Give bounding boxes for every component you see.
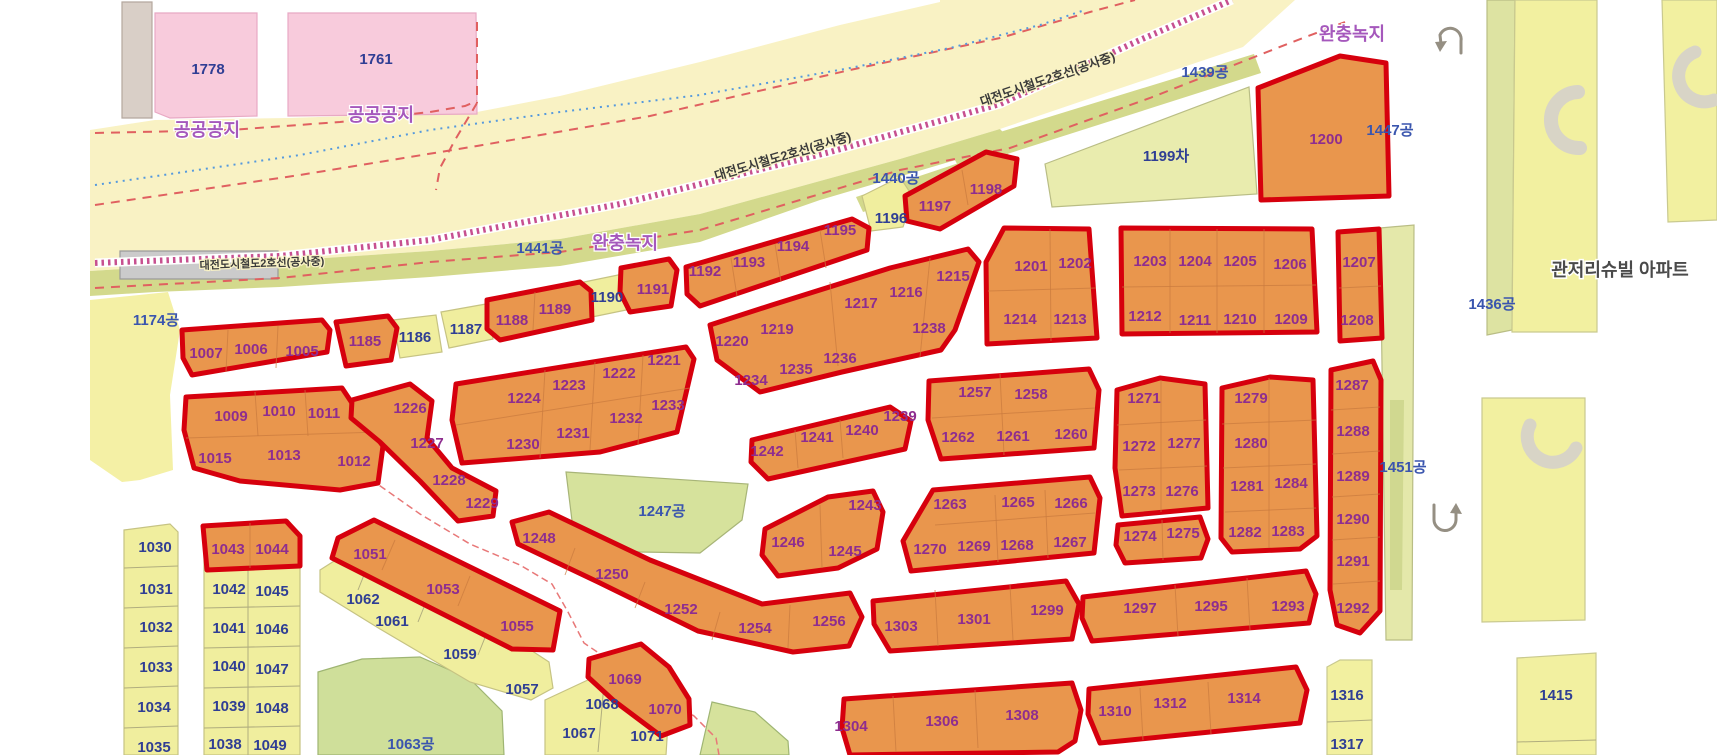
parcel-label-1005: 1005 <box>285 343 318 360</box>
uturn-arrow-right-icon-head <box>1450 503 1462 514</box>
parcel-label-1233: 1233 <box>651 397 684 414</box>
parcel-label-1043: 1043 <box>211 541 244 558</box>
parcel-label-1288: 1288 <box>1336 423 1369 440</box>
parcel-label-1227: 1227 <box>410 435 443 452</box>
parcel-label-1223: 1223 <box>552 377 585 394</box>
parcel-label-1070: 1070 <box>648 701 681 718</box>
parcel-label-1273: 1273 <box>1122 483 1155 500</box>
parcel-label-1271: 1271 <box>1127 390 1160 407</box>
parcel-label-1279: 1279 <box>1234 390 1267 407</box>
parcel-label-1212: 1212 <box>1128 308 1161 325</box>
parcel-label-1262: 1262 <box>941 429 974 446</box>
map-label-1441공: 1441공 <box>516 240 563 257</box>
strip-green-right-top <box>1487 0 1515 335</box>
parcel-label-1268: 1268 <box>1000 537 1033 554</box>
parcel-label-1245: 1245 <box>828 543 861 560</box>
parcel-label-1314: 1314 <box>1227 690 1261 707</box>
apartment-block-corner <box>1662 0 1717 222</box>
parcel-label-1013: 1013 <box>267 447 300 464</box>
parcel-label-1257: 1257 <box>958 384 991 401</box>
parcel-label-1230: 1230 <box>506 436 539 453</box>
map-label-1045: 1045 <box>255 583 288 600</box>
map-label-1033: 1033 <box>139 659 172 676</box>
map-label-1040: 1040 <box>212 658 245 675</box>
group-1303: 130313011299 <box>873 581 1079 651</box>
parcel-label-1206: 1206 <box>1273 256 1306 273</box>
parcel-label-1263: 1263 <box>933 496 966 513</box>
parcel-label-1216: 1216 <box>889 284 922 301</box>
parcel-label-1011: 1011 <box>308 405 341 422</box>
map-label-1038: 1038 <box>208 736 241 753</box>
strip-1451-inner <box>1390 400 1404 590</box>
group-1185: 1185 <box>336 316 397 366</box>
map-label-1187: 1187 <box>450 321 483 338</box>
parcel-label-1248: 1248 <box>522 530 555 547</box>
map-label-관저리슈빌 아파트: 관저리슈빌 아파트 <box>1551 260 1688 280</box>
parcel-label-1007: 1007 <box>189 345 222 362</box>
group-1207: 12071208 <box>1338 229 1382 341</box>
group-1279: 127912801281128412821283 <box>1221 377 1317 552</box>
parcel-label-1291: 1291 <box>1336 553 1369 570</box>
parcel-label-1198: 1198 <box>970 181 1003 198</box>
parcel-label-1265: 1265 <box>1001 494 1034 511</box>
parcel-label-1197: 1197 <box>919 198 952 215</box>
parcel-label-1055: 1055 <box>500 618 533 635</box>
parcel-label-1246: 1246 <box>771 534 804 551</box>
group-1005: 100710061005 <box>182 320 330 375</box>
cadastral-map-canvas[interactable]: 1007100610051185118811891191119211931194… <box>0 0 1717 755</box>
parcel-label-1228: 1228 <box>432 472 465 489</box>
parcel-label-1287: 1287 <box>1335 377 1368 394</box>
parcel-label-1267: 1267 <box>1053 534 1086 551</box>
parcel-label-1210: 1210 <box>1223 311 1256 328</box>
map-label-1451공: 1451공 <box>1379 459 1426 476</box>
parcel-label-1235: 1235 <box>779 361 812 378</box>
map-label-1199차: 1199차 <box>1143 148 1190 165</box>
map-label-1196: 1196 <box>875 210 908 227</box>
apartment-block-top <box>1512 0 1597 332</box>
parcel-label-1304: 1304 <box>834 718 868 735</box>
map-label-1063공: 1063공 <box>387 736 434 753</box>
parcel-label-1202: 1202 <box>1058 255 1091 272</box>
map-label-1035: 1035 <box>137 739 170 755</box>
parcel-label-1229: 1229 <box>465 495 498 512</box>
block-1415[interactable] <box>1517 653 1596 755</box>
map-label-1031: 1031 <box>139 581 172 598</box>
building-gray-topleft <box>122 2 152 118</box>
uturn-arrow-top-icon <box>1435 28 1461 53</box>
parcel-label-1204: 1204 <box>1178 253 1212 270</box>
parcel-label-1306: 1306 <box>925 713 958 730</box>
map-label-1041: 1041 <box>212 620 245 637</box>
parcel-label-1240: 1240 <box>845 422 878 439</box>
parcel-label-1207: 1207 <box>1342 254 1375 271</box>
parcel-label-1260: 1260 <box>1054 426 1087 443</box>
parcel-label-1200: 1200 <box>1309 131 1342 148</box>
parcel-label-1231: 1231 <box>556 425 589 442</box>
map-label-1071: 1071 <box>630 728 663 745</box>
parcel-label-1275: 1275 <box>1166 525 1199 542</box>
uturn-arrow-right-icon <box>1434 503 1462 531</box>
map-label-1186: 1186 <box>399 329 432 346</box>
group-1274: 12741275 <box>1116 517 1208 563</box>
parcel-label-1069: 1069 <box>608 671 641 688</box>
parcel-label-1193: 1193 <box>733 254 766 271</box>
parcel-label-1252: 1252 <box>664 601 697 618</box>
map-label-1047: 1047 <box>255 661 288 678</box>
map-label-1032: 1032 <box>139 619 172 636</box>
map-label-1034: 1034 <box>137 699 171 716</box>
parcel-label-1221: 1221 <box>647 352 680 369</box>
parcel-label-1222: 1222 <box>602 365 635 382</box>
parcel-label-1283: 1283 <box>1271 523 1304 540</box>
parcel-label-1044: 1044 <box>255 541 289 558</box>
group-1243: 124312461245 <box>762 491 883 576</box>
parcel-label-1201: 1201 <box>1014 258 1047 275</box>
column-1030[interactable] <box>124 524 178 755</box>
map-label-공공공지: 공공공지 <box>174 120 240 140</box>
parcel-label-1276: 1276 <box>1165 483 1198 500</box>
parcel-label-1277: 1277 <box>1167 435 1200 452</box>
group-1304: 130413061308 <box>834 683 1081 755</box>
map-label-1174공: 1174공 <box>133 312 180 329</box>
group-1310: 131013121314 <box>1088 667 1307 743</box>
parcel-label-1238: 1238 <box>912 320 945 337</box>
map-label-1042: 1042 <box>212 581 245 598</box>
parcel-label-1272: 1272 <box>1122 438 1155 455</box>
group-1297: 129712951293 <box>1082 571 1316 641</box>
parcel-label-1224: 1224 <box>507 390 541 407</box>
parcel-label-1301: 1301 <box>957 611 990 628</box>
group-1287: 128712881289129012911292 <box>1330 361 1381 633</box>
parcel-label-1213: 1213 <box>1053 311 1086 328</box>
parcel-label-1242: 1242 <box>750 443 783 460</box>
parcel-label-1250: 1250 <box>595 566 628 583</box>
parcel-label-1215: 1215 <box>936 268 969 285</box>
parcel-label-1191: 1191 <box>637 281 670 298</box>
parcel-label-1256: 1256 <box>812 613 845 630</box>
parcel-label-1243: 1243 <box>848 497 881 514</box>
map-label-1415: 1415 <box>1539 687 1572 704</box>
map-label-1761: 1761 <box>359 51 392 68</box>
parcel-label-1194: 1194 <box>777 238 810 255</box>
map-viewport: 1007100610051185118811891191119211931194… <box>0 0 1717 755</box>
parcel-label-1192: 1192 <box>689 263 722 280</box>
map-label-1439공: 1439공 <box>1181 64 1228 81</box>
parcel-label-1203: 1203 <box>1133 253 1166 270</box>
group-1257: 12571258126212611260 <box>928 369 1099 459</box>
map-label-1057: 1057 <box>505 681 538 698</box>
parcel-label-1015: 1015 <box>198 450 231 467</box>
parcel-label-1293: 1293 <box>1271 598 1304 615</box>
map-label-1030: 1030 <box>138 539 171 556</box>
parcel-label-1208: 1208 <box>1340 312 1373 329</box>
group-1191: 1191 <box>620 259 677 312</box>
parcel-label-1303: 1303 <box>884 618 917 635</box>
parcel-label-1012: 1012 <box>337 453 370 470</box>
parcel-label-1195: 1195 <box>824 222 857 239</box>
parcel-label-1310: 1310 <box>1098 703 1131 720</box>
group-1221: 12211222122312241230123112321233 <box>452 347 694 463</box>
parcel-label-1009: 1009 <box>214 408 247 425</box>
map-label-1061: 1061 <box>375 613 408 630</box>
parcel-label-1226: 1226 <box>393 400 426 417</box>
parcel-label-1006: 1006 <box>234 341 267 358</box>
group-1304-parcel[interactable] <box>842 683 1081 755</box>
parcel-label-1266: 1266 <box>1054 495 1087 512</box>
map-label-1316: 1316 <box>1330 687 1363 704</box>
parcel-label-1281: 1281 <box>1230 478 1263 495</box>
map-label-1049: 1049 <box>253 737 286 754</box>
map-label-1062: 1062 <box>346 591 379 608</box>
parcel-label-1232: 1232 <box>609 410 642 427</box>
map-label-1440공: 1440공 <box>872 170 919 187</box>
parcel-label-1269: 1269 <box>957 538 990 555</box>
group-1263: 1263126512661270126912681267 <box>903 477 1100 571</box>
green-wedge-south <box>700 702 789 755</box>
parcel-label-1312: 1312 <box>1153 695 1186 712</box>
parcel-label-1290: 1290 <box>1336 511 1369 528</box>
map-label-1190: 1190 <box>591 289 624 306</box>
parcel-label-1219: 1219 <box>760 321 793 338</box>
parcel-label-1254: 1254 <box>738 620 772 637</box>
group-1188: 11881189 <box>487 282 592 340</box>
parcel-label-1010: 1010 <box>262 403 295 420</box>
parcel-label-1239: 1239 <box>883 408 916 425</box>
parcel-label-1289: 1289 <box>1336 468 1369 485</box>
parcel-label-1282: 1282 <box>1228 524 1261 541</box>
parcel-label-1209: 1209 <box>1274 311 1307 328</box>
map-label-1068: 1068 <box>585 696 618 713</box>
group-1271: 12711272127712731276 <box>1115 378 1208 516</box>
parcel-label-1284: 1284 <box>1274 475 1308 492</box>
group-1201: 1201120212141213 <box>986 228 1097 344</box>
parcel-label-1214: 1214 <box>1003 311 1037 328</box>
parcel-label-1241: 1241 <box>800 429 833 446</box>
map-label-완충녹지: 완충녹지 <box>592 233 658 253</box>
map-label-1447공: 1447공 <box>1366 122 1413 139</box>
parcel-label-1205: 1205 <box>1223 253 1256 270</box>
map-label-1436공: 1436공 <box>1468 296 1515 313</box>
map-label-완충녹지: 완충녹지 <box>1319 24 1385 44</box>
map-label-1247공: 1247공 <box>638 503 685 520</box>
parcel-label-1234: 1234 <box>734 372 768 389</box>
parcel-label-1217: 1217 <box>844 295 877 312</box>
parcel-label-1211: 1211 <box>1179 312 1212 329</box>
uturn-arrow-top-icon-head <box>1435 41 1447 52</box>
map-label-공공공지: 공공공지 <box>348 105 414 125</box>
map-label-1317: 1317 <box>1330 736 1363 753</box>
parcel-label-1236: 1236 <box>823 350 856 367</box>
parcel-label-1051: 1051 <box>353 546 386 563</box>
parcel-label-1299: 1299 <box>1030 602 1063 619</box>
parcel-label-1261: 1261 <box>996 428 1029 445</box>
parcel-label-1185: 1185 <box>349 333 382 350</box>
parcel-label-1297: 1297 <box>1123 600 1156 617</box>
map-label-1048: 1048 <box>255 700 288 717</box>
parcel-label-1280: 1280 <box>1234 435 1267 452</box>
group-1239: 1242124112401239 <box>750 407 916 479</box>
parcel-label-1292: 1292 <box>1336 600 1369 617</box>
parcel-label-1220: 1220 <box>715 333 748 350</box>
group-1203: 12031204120512061212121112101209 <box>1121 228 1317 334</box>
uturn-arrow-top-icon-stroke <box>1440 28 1461 53</box>
parcel-label-1308: 1308 <box>1005 707 1038 724</box>
map-label-1039: 1039 <box>212 698 245 715</box>
map-label-1059: 1059 <box>443 646 476 663</box>
parcel-label-1295: 1295 <box>1194 598 1227 615</box>
parcel-label-1053: 1053 <box>426 581 459 598</box>
map-label-1778: 1778 <box>191 61 224 78</box>
parcel-label-1270: 1270 <box>913 541 946 558</box>
parcel-label-1258: 1258 <box>1014 386 1047 403</box>
parcel-label-1189: 1189 <box>539 301 572 318</box>
group-1043: 10431044 <box>203 521 300 570</box>
parcel-label-1188: 1188 <box>496 312 529 329</box>
parcel-label-1274: 1274 <box>1123 528 1157 545</box>
map-label-1067: 1067 <box>562 725 595 742</box>
map-label-1046: 1046 <box>255 621 288 638</box>
